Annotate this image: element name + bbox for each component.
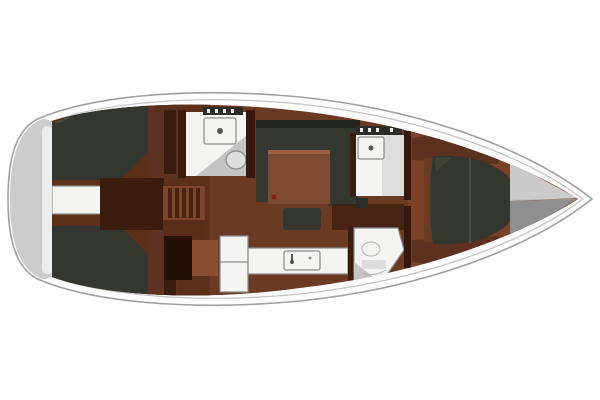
forward-head-panel [382,135,404,196]
forward-head [350,126,411,208]
hatch-tick [231,109,234,113]
aft-head [178,107,255,178]
hatch-tick [207,109,210,113]
step-rung [175,188,179,218]
nav-seat [192,240,218,276]
table-accent-dot [272,195,277,200]
hatch-tick [215,109,218,113]
forward-head-locker [356,198,368,208]
companionway-floor [100,178,164,230]
forward-bulkhead-lower [404,206,411,268]
salon-table-edge [268,150,330,154]
aft-port-cabin [52,106,178,182]
toilet-bowl-dot [217,128,223,134]
engine-walkway [52,186,102,214]
hatch-tick [390,128,393,132]
sink-faucet-base [290,260,294,264]
sink-drain-dot [309,257,312,260]
shower-bench [362,260,386,269]
transom-step [42,126,53,274]
step-rung [196,188,200,218]
salon-stool [283,208,321,230]
shower-seat [226,151,246,169]
forward-shower-wall [348,226,354,284]
galley-fridge [220,236,248,292]
step-rung [168,188,172,218]
salon-table [268,150,330,204]
hatch-tick [368,128,371,132]
step-rung [189,188,193,218]
aft-port-locker [164,110,176,174]
head-bulkhead [246,110,255,178]
step-rung [182,188,186,218]
companionway [100,178,205,238]
companionway-landing [163,220,205,238]
toilet-bowl-dot [369,146,374,151]
nav-cabinet [164,236,192,280]
forward-head-bulkhead [404,131,411,200]
yacht-floor-plan-svg [0,0,600,400]
hatch-tick [376,128,379,132]
galley-sink [284,251,320,270]
yacht-floor-plan [0,0,600,400]
forward-head-cabinet [350,133,356,197]
aft-head-cabinet [178,110,186,178]
hatch-tick [223,109,226,113]
hatch-tick [360,128,363,132]
